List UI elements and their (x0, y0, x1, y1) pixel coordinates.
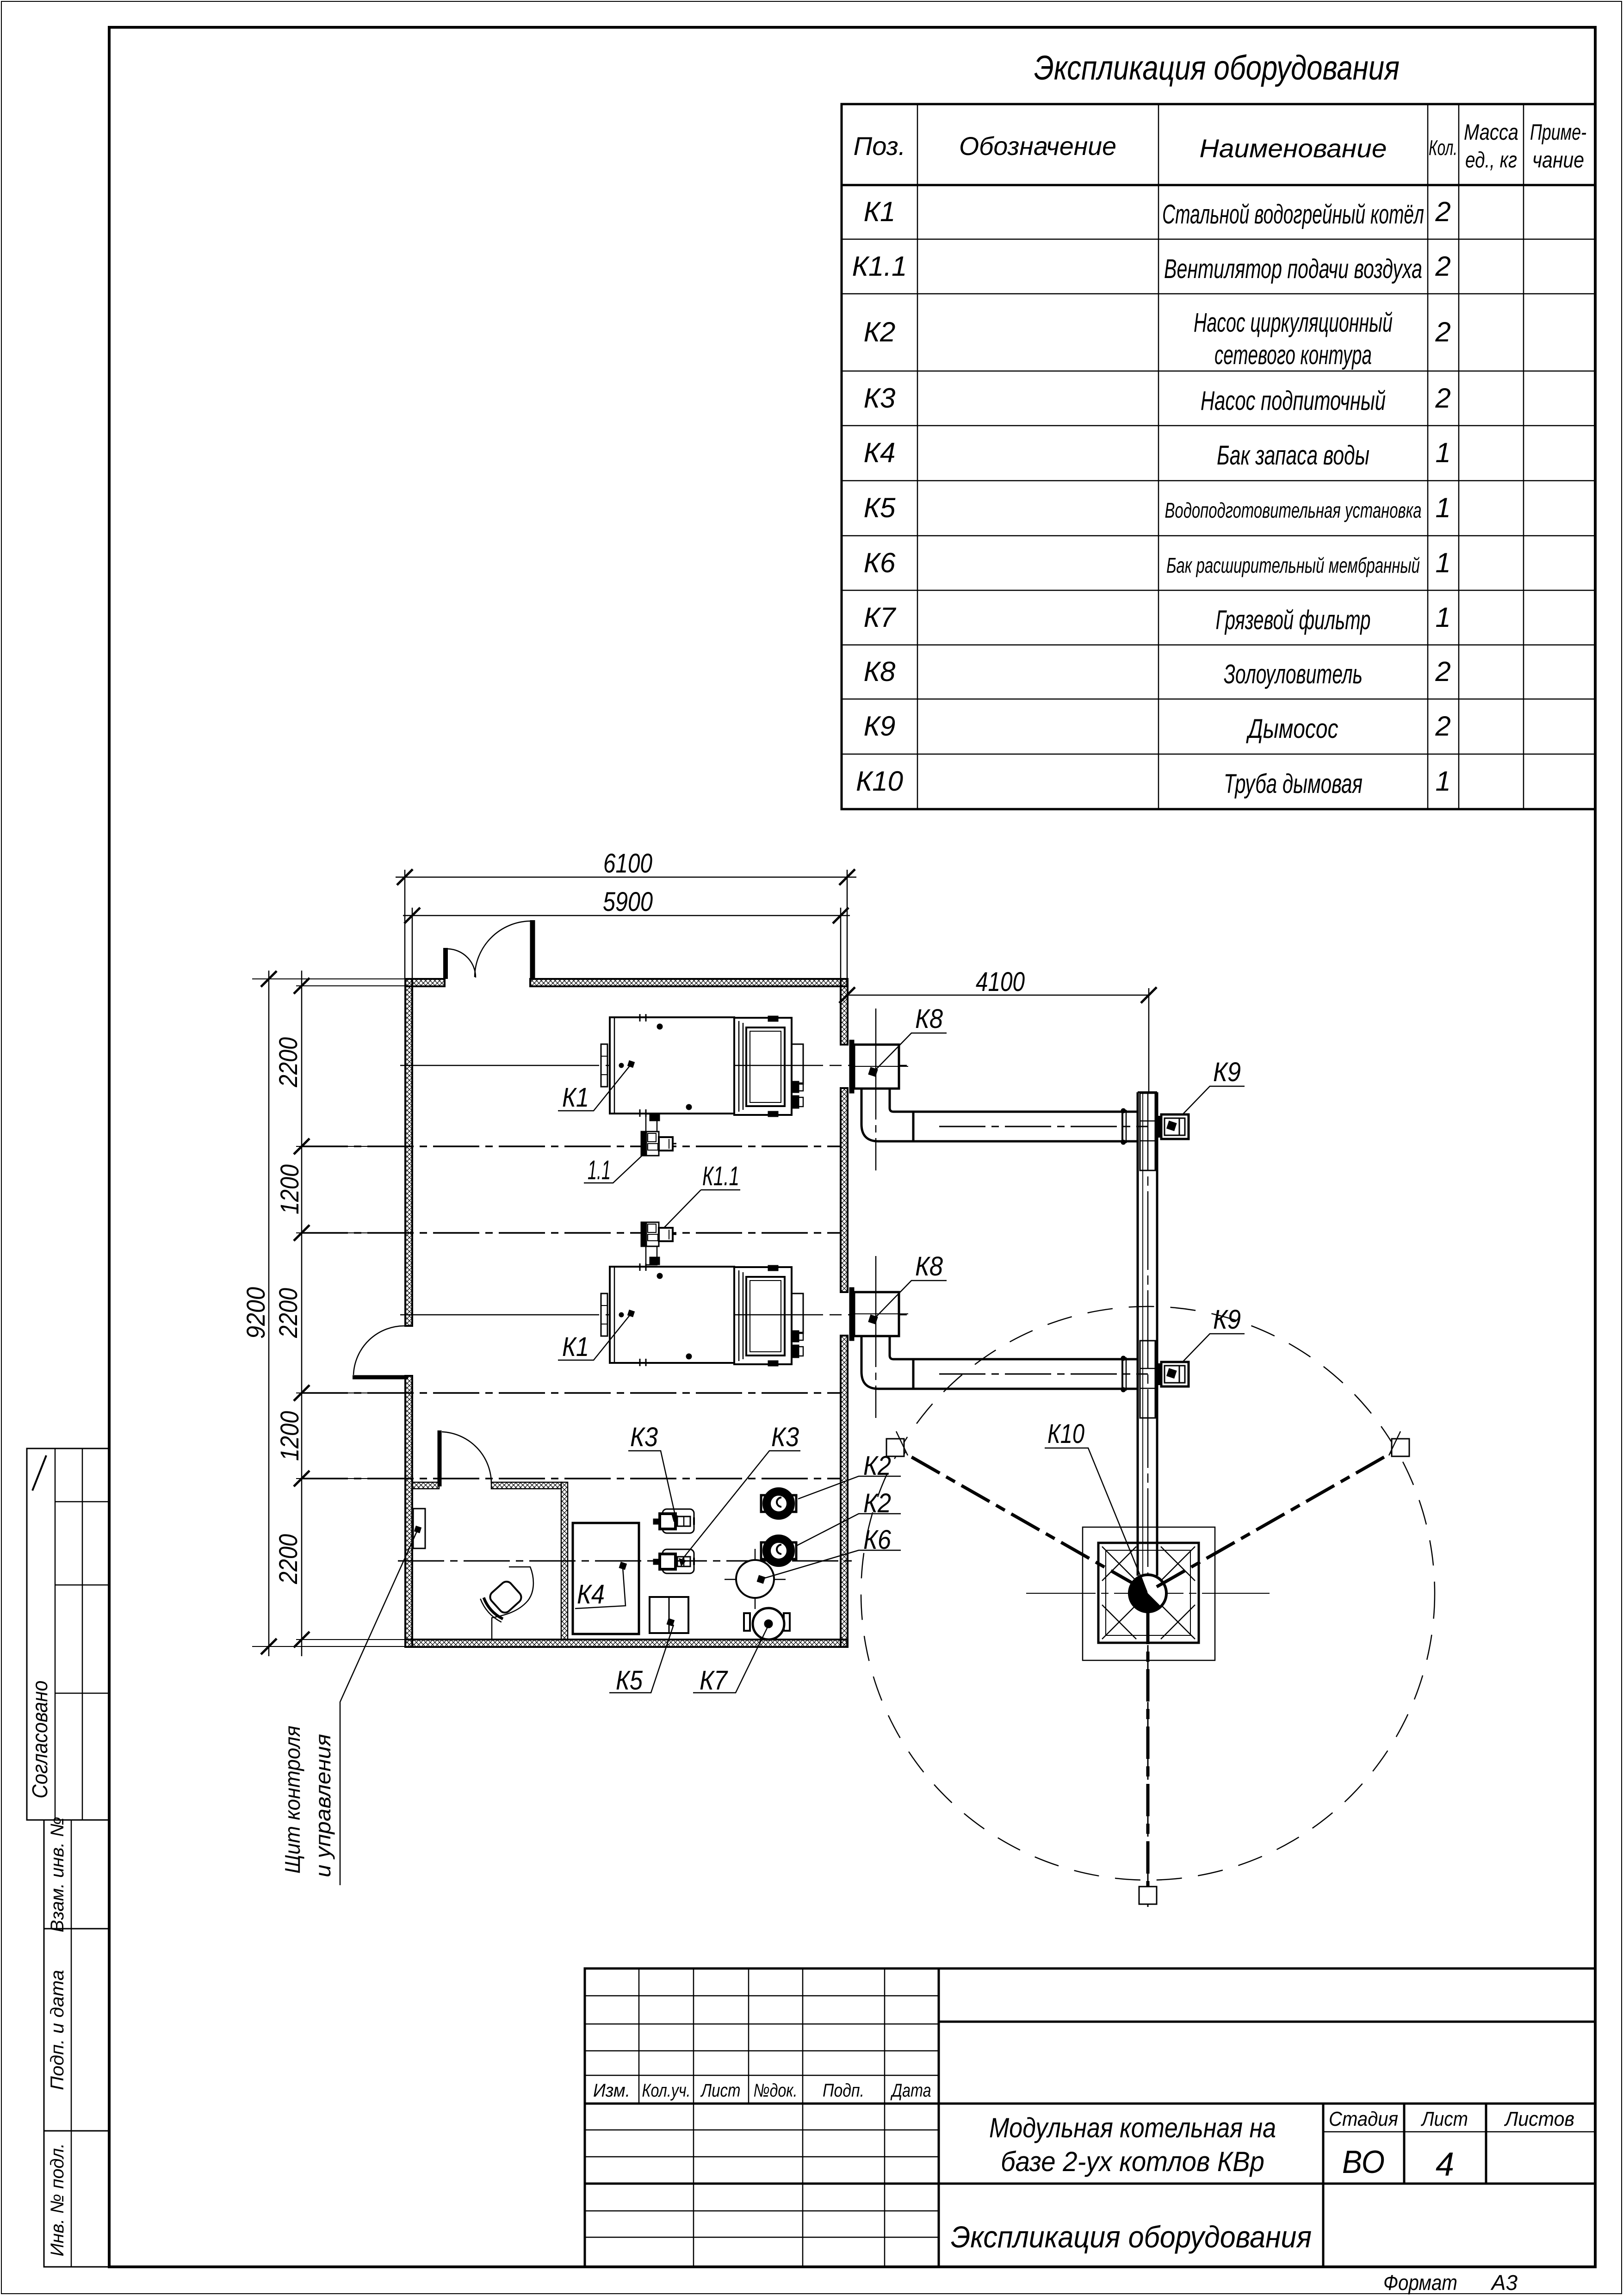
svg-text:1.1: 1.1 (588, 1155, 611, 1185)
svg-text:К8: К8 (864, 656, 896, 687)
svg-text:К4: К4 (864, 437, 896, 468)
svg-text:2: 2 (1435, 251, 1450, 282)
svg-text:базе 2-ух котлов КВр: базе 2-ух котлов КВр (1001, 2146, 1264, 2177)
svg-text:и управления: и управления (311, 1734, 335, 1877)
svg-text:4100: 4100 (976, 967, 1025, 997)
svg-text:чание: чание (1532, 148, 1584, 173)
svg-text:Стальной водогрейный котёл: Стальной водогрейный котёл (1162, 199, 1424, 229)
svg-text:К3: К3 (864, 383, 896, 414)
svg-text:2200: 2200 (273, 1037, 303, 1088)
svg-text:К1.1: К1.1 (852, 251, 907, 282)
svg-text:Листов: Листов (1504, 2108, 1574, 2130)
svg-text:Экспликация оборудования: Экспликация оборудования (951, 2220, 1312, 2254)
svg-text:Кол.: Кол. (1429, 136, 1457, 160)
svg-text:К2: К2 (864, 316, 896, 347)
svg-text:№док.: №док. (754, 2080, 798, 2101)
svg-text:К9: К9 (1213, 1305, 1241, 1335)
svg-text:Вентилятор подачи воздуха: Вентилятор подачи воздуха (1164, 254, 1422, 284)
svg-text:К8: К8 (915, 1251, 943, 1281)
svg-text:5900: 5900 (603, 887, 653, 917)
svg-text:4: 4 (1436, 2146, 1454, 2183)
svg-text:2: 2 (1435, 196, 1450, 227)
svg-text:К1: К1 (562, 1332, 589, 1362)
svg-text:Экспликация оборудования: Экспликация оборудования (1034, 49, 1400, 87)
svg-text:Лист: Лист (1420, 2108, 1468, 2130)
svg-text:К6: К6 (864, 547, 896, 578)
svg-text:ВО: ВО (1342, 2144, 1385, 2180)
svg-text:К3: К3 (630, 1422, 658, 1452)
svg-text:Поз.: Поз. (854, 131, 906, 161)
svg-text:К3: К3 (771, 1422, 799, 1452)
svg-text:Щит контроля: Щит контроля (280, 1726, 304, 1874)
svg-text:К5: К5 (864, 492, 896, 523)
svg-text:Дымосос: Дымосос (1246, 714, 1338, 744)
svg-text:К7: К7 (864, 602, 897, 633)
svg-text:1200: 1200 (275, 1164, 304, 1214)
svg-text:К5: К5 (616, 1665, 643, 1696)
svg-text:Масса: Масса (1464, 120, 1518, 145)
svg-text:К9: К9 (1213, 1057, 1241, 1087)
svg-text:Обозначение: Обозначение (959, 131, 1116, 161)
svg-text:9200: 9200 (241, 1287, 270, 1339)
svg-text:ед., кг: ед., кг (1465, 148, 1517, 173)
svg-text:сетевого контура: сетевого контура (1214, 340, 1372, 370)
svg-text:К8: К8 (915, 1004, 943, 1034)
svg-text:К10: К10 (856, 766, 903, 797)
svg-text:К1.1: К1.1 (702, 1161, 739, 1191)
svg-text:Взам. инв. №: Взам. инв. № (47, 1817, 68, 1932)
svg-text:Приме-: Приме- (1530, 120, 1586, 145)
svg-text:Насос циркуляционный: Насос циркуляционный (1194, 308, 1393, 338)
svg-text:2: 2 (1435, 711, 1450, 742)
svg-text:К10: К10 (1047, 1419, 1084, 1449)
svg-text:Подп. и дата: Подп. и дата (47, 1970, 68, 2090)
svg-text:Стадия: Стадия (1329, 2108, 1398, 2130)
svg-text:Золоуловитель: Золоуловитель (1224, 659, 1363, 689)
svg-text:Кол.уч.: Кол.уч. (642, 2080, 691, 2101)
svg-text:1: 1 (1435, 602, 1450, 633)
svg-text:2: 2 (1435, 656, 1450, 687)
svg-text:К9: К9 (864, 711, 896, 742)
svg-text:Бак запаса воды: Бак запаса воды (1217, 440, 1369, 470)
svg-text:Грязевой фильтр: Грязевой фильтр (1216, 605, 1371, 635)
svg-text:Дата: Дата (890, 2080, 931, 2101)
svg-text:Наименование: Наименование (1200, 134, 1387, 163)
svg-text:К1: К1 (562, 1083, 589, 1113)
svg-text:К7: К7 (700, 1665, 728, 1696)
svg-text:2: 2 (1435, 316, 1450, 347)
svg-text:1200: 1200 (275, 1411, 304, 1461)
svg-text:1: 1 (1435, 766, 1450, 797)
svg-text:2: 2 (1435, 383, 1450, 414)
svg-text:Изм.: Изм. (593, 2080, 630, 2101)
svg-text:Модульная котельная на: Модульная котельная на (989, 2112, 1276, 2143)
svg-text:2200: 2200 (273, 1288, 303, 1338)
svg-text:Формат: Формат (1383, 2271, 1457, 2295)
svg-text:Лист: Лист (700, 2080, 740, 2101)
svg-text:Труба дымовая: Труба дымовая (1224, 769, 1363, 799)
svg-text:Инв. № подл.: Инв. № подл. (47, 2143, 68, 2257)
svg-text:2200: 2200 (273, 1534, 303, 1584)
svg-text:Бак расширительный мембранный: Бак расширительный мембранный (1166, 553, 1420, 577)
svg-text:1: 1 (1435, 547, 1450, 578)
svg-text:6100: 6100 (603, 848, 652, 879)
svg-text:1: 1 (1435, 437, 1450, 468)
svg-text:Водоподготовительная установка: Водоподготовительная установка (1165, 498, 1422, 522)
svg-text:Согласовано: Согласовано (28, 1681, 52, 1799)
svg-text:А3: А3 (1490, 2271, 1518, 2295)
svg-text:К4: К4 (577, 1579, 605, 1609)
svg-text:Подп.: Подп. (823, 2080, 864, 2101)
svg-text:Насос подпиточный: Насос подпиточный (1201, 386, 1386, 416)
svg-text:К1: К1 (864, 196, 896, 227)
svg-text:1: 1 (1435, 492, 1450, 523)
